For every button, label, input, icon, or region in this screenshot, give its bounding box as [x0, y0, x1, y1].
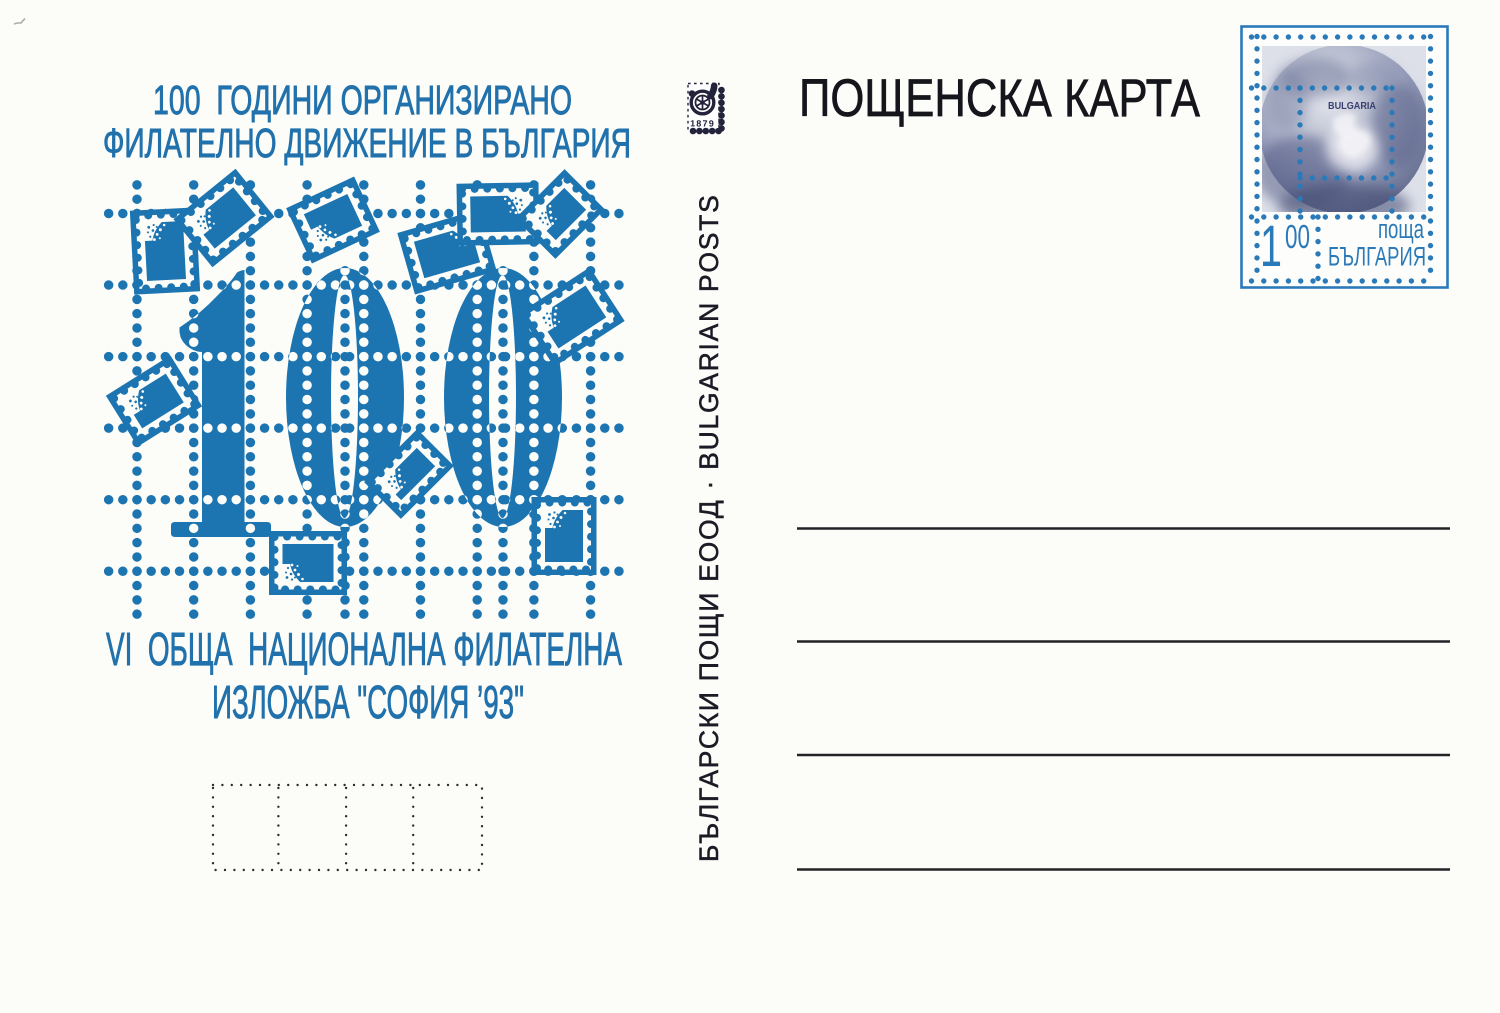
svg-text:БЪЛГАРСКИ ПОЩИ ЕООД · BULGARIA: БЪЛГАРСКИ ПОЩИ ЕООД · BULGARIAN POSTS [694, 194, 724, 862]
svg-text:ФИЛАТЕЛНО ДВИЖЕНИЕ В БЪЛГАРИЯ: ФИЛАТЕЛНО ДВИЖЕНИЕ В БЪЛГАРИЯ [103, 120, 631, 166]
svg-text:00: 00 [1285, 218, 1310, 255]
svg-text:VI ОБЩА НАЦИОНАЛНА ФИЛАТЕЛНА: VI ОБЩА НАЦИОНАЛНА ФИЛАТЕЛНА [106, 623, 622, 675]
svg-text:1879: 1879 [690, 118, 715, 128]
svg-text:поща: поща [1378, 214, 1425, 244]
svg-text:1: 1 [1260, 214, 1282, 279]
svg-text:ПОЩЕНСКА КАРТА: ПОЩЕНСКА КАРТА [799, 69, 1201, 128]
svg-text:BULGARIA: BULGARIA [1328, 100, 1376, 112]
svg-text:100 ГОДИНИ ОРГАНИЗИРАНО: 100 ГОДИНИ ОРГАНИЗИРАНО [153, 77, 572, 123]
svg-text:ИЗЛОЖБА "СОФИЯ ’93": ИЗЛОЖБА "СОФИЯ ’93" [212, 676, 524, 728]
svg-text:БЪЛГАРИЯ: БЪЛГАРИЯ [1328, 242, 1426, 272]
